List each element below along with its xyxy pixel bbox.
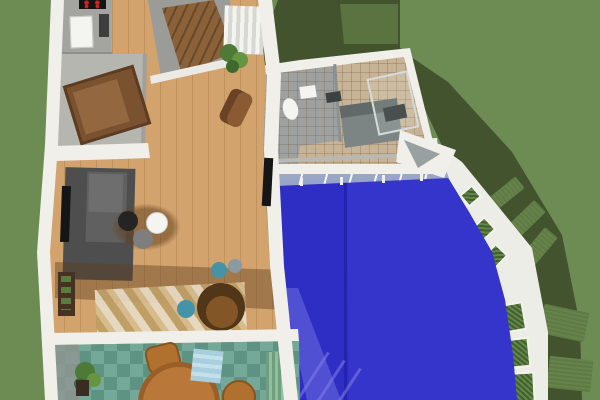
chair-seat (383, 104, 407, 122)
round-chair-gray (133, 229, 153, 249)
teal-stool (211, 262, 227, 278)
round-chair-black (118, 211, 138, 231)
dining-table-top (206, 296, 238, 328)
sideboard (58, 272, 75, 316)
plant-pot (76, 380, 89, 396)
sideboard-items (61, 276, 71, 310)
teal-stool (177, 300, 195, 318)
pool-divider-line (344, 180, 347, 400)
bed-mattress (73, 79, 130, 135)
houseplant (226, 60, 239, 73)
glass-post (300, 178, 303, 186)
hedge (546, 356, 593, 392)
potted-plant (87, 373, 101, 387)
refrigerator (99, 14, 109, 37)
floorplan-render (0, 0, 600, 400)
glass-post (420, 173, 423, 181)
glass-post (382, 175, 385, 183)
pale-blue-lounge (190, 349, 223, 384)
gray-stool (228, 259, 242, 273)
kitchen-stove (79, 0, 106, 9)
kitchen-sink (69, 16, 93, 49)
terrace-dark-item (325, 91, 341, 103)
glass-post (340, 177, 343, 185)
white-fixture (299, 85, 317, 99)
